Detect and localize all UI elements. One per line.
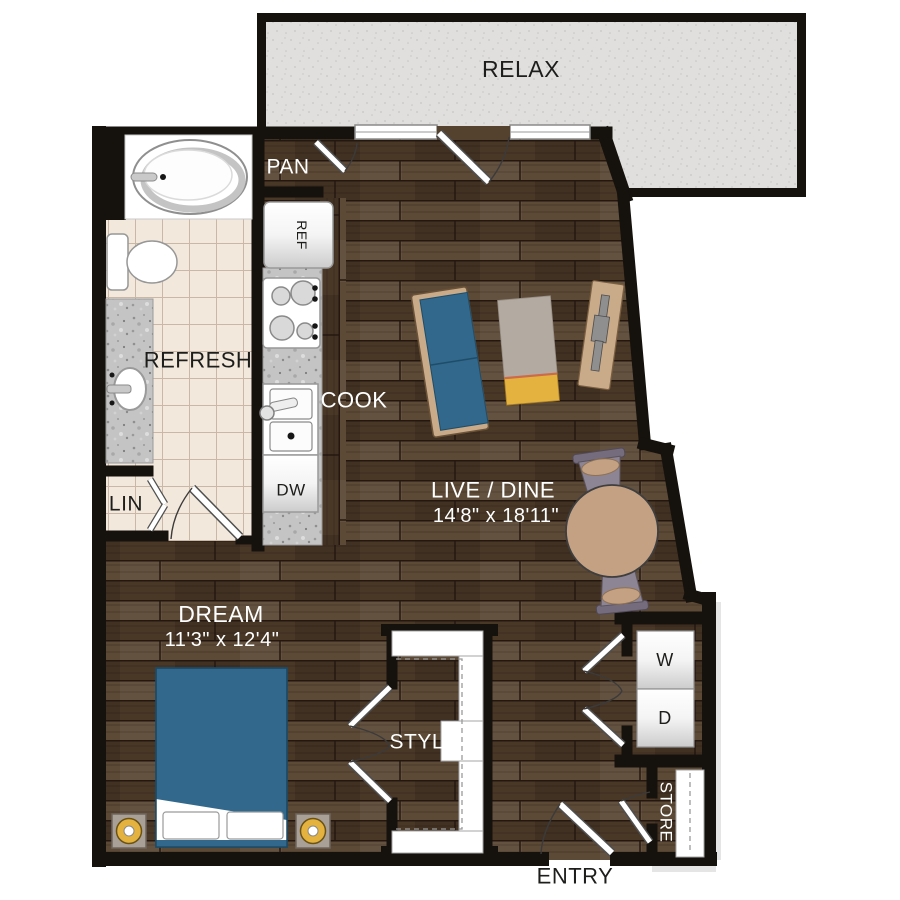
floor-plan-page: REF DW [0,0,900,900]
dining-table [566,485,658,577]
faucet-base [260,406,274,420]
sink-drain [288,433,295,440]
washer-label: W [656,650,674,670]
room-label-entry: ENTRY [537,864,614,889]
tub-alcove-wall [101,134,126,220]
stove-knob [312,285,318,291]
floor-plan: REF DW [0,0,900,900]
lamp-center [308,826,318,836]
room-label-storage: STORE [657,782,676,843]
dryer-label: D [658,708,672,728]
laundry-closet: W D [637,631,694,747]
room-label-bathroom: REFRESH [144,348,253,373]
lamp-center [124,826,134,836]
tv [591,315,609,343]
vanity-faucet [107,385,131,393]
room-label-living: LIVE / DINE [431,478,555,503]
tub-faucet [131,173,157,181]
refrigerator: REF [264,202,333,268]
vanity [106,299,153,463]
room-label-pantry: PAN [266,156,309,179]
dishwasher-label: DW [276,481,305,500]
burner [272,287,290,305]
stove-knob [312,334,318,340]
refrigerator-label: REF [294,220,310,250]
bed [156,668,287,847]
chaise-lounge [498,296,560,405]
room-label-balcony: RELAX [482,56,560,82]
room-dimensions-living: 14'8" x 18'11" [433,505,559,527]
stove-knob [312,323,318,329]
room-label-kitchen: COOK [321,388,388,413]
tub-drain [160,174,166,180]
room-label-closet: STYLE [389,731,458,754]
burner [297,323,313,339]
stove-knob [312,296,318,302]
room-label-linen: LIN [109,493,143,516]
pillow [163,812,219,839]
bed-foot-edge [156,841,287,847]
closet-shelf [392,631,483,656]
burner [270,316,294,340]
closet-shelf [392,831,483,853]
room-dimensions-bedroom: 11'3" x 12'4" [165,629,280,651]
dishwasher: DW [263,455,318,512]
kitchen-area: REF DW [260,202,333,545]
pillow [227,812,283,839]
burner [291,281,315,305]
bathtub [131,140,247,214]
room-label-bedroom: DREAM [178,601,264,627]
storage-closet [676,770,704,857]
kitchen-sink [260,384,318,455]
faucet-handle [110,373,115,378]
nightstand [296,814,330,848]
faucet-handle [110,401,115,406]
nightstand [112,814,146,848]
stove [263,278,320,348]
